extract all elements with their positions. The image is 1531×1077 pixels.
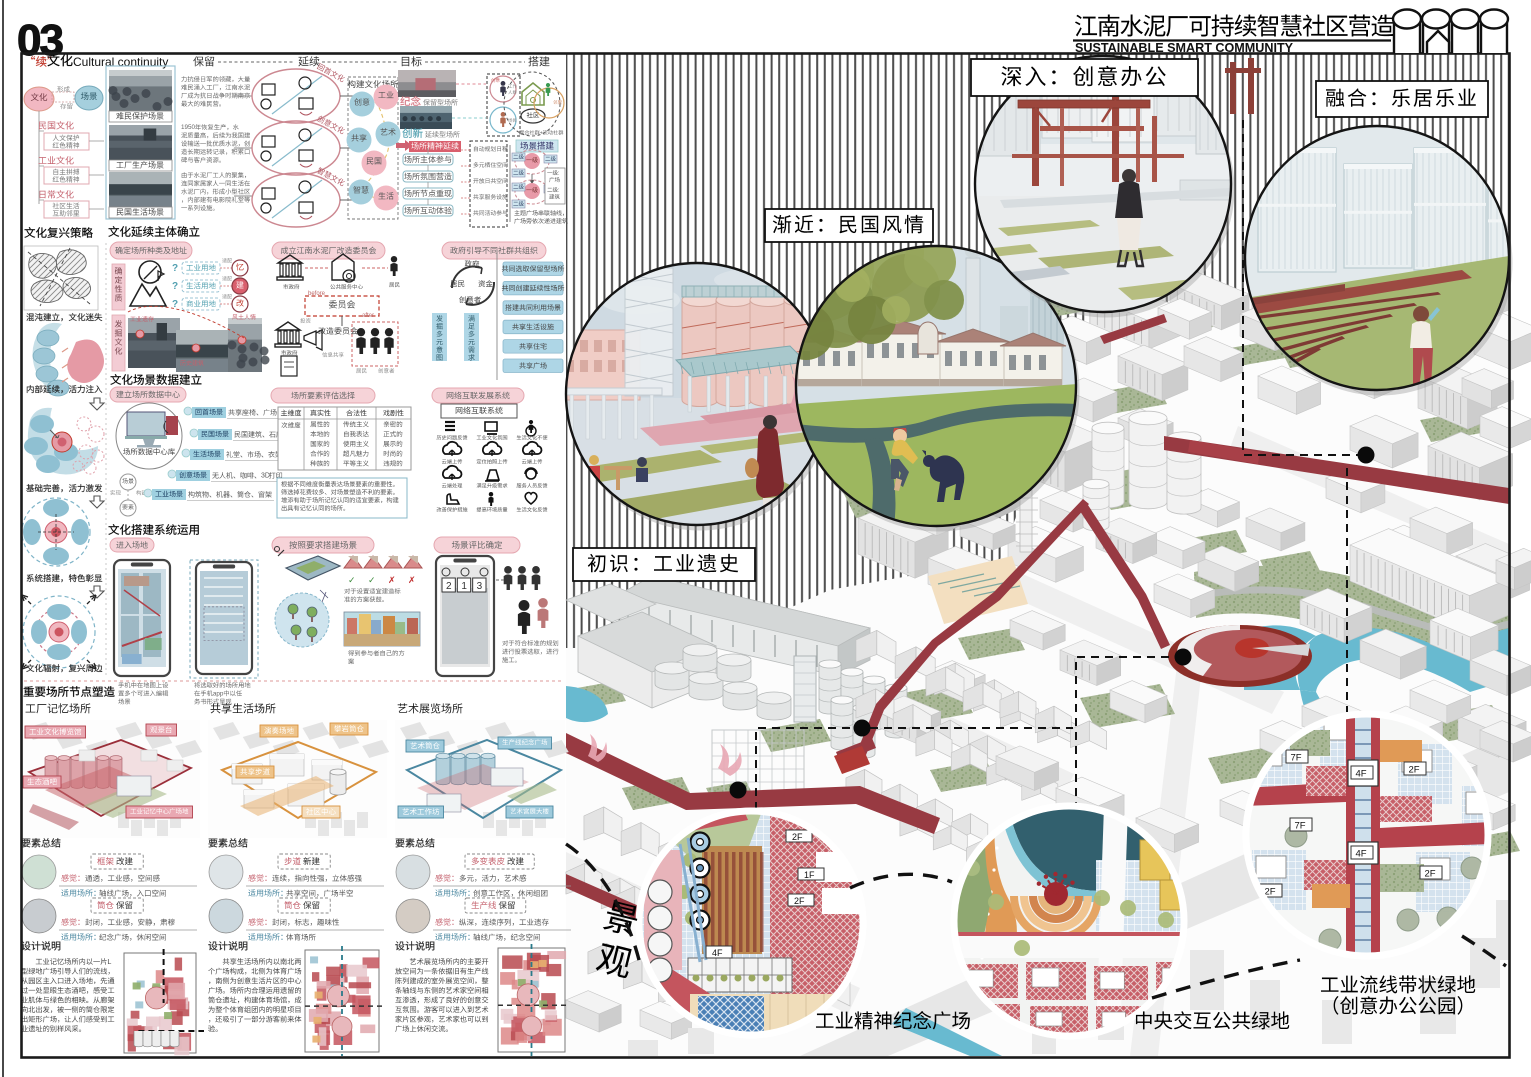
svg-text:app: app [213, 690, 224, 697]
svg-text:4F: 4F [1356, 849, 1367, 860]
svg-text:✓: ✓ [348, 575, 356, 585]
svg-text:7F: 7F [1291, 753, 1302, 764]
svg-text:2F: 2F [792, 832, 803, 842]
svg-text:2: 2 [446, 581, 452, 592]
svg-text:4F: 4F [712, 948, 723, 958]
svg-text:before: before [308, 291, 326, 297]
svg-text:2F: 2F [1425, 869, 1436, 880]
svg-text:SUSTAINABLE SMART COMMUNITY: SUSTAINABLE SMART COMMUNITY [1075, 41, 1294, 55]
svg-text:7F: 7F [1295, 821, 1306, 832]
svg-text:03: 03 [17, 16, 62, 65]
svg-text:2F: 2F [1409, 765, 1420, 776]
svg-text:2F: 2F [794, 896, 805, 906]
svg-text:Cultural continuity: Cultural continuity [73, 55, 168, 69]
svg-text:✗: ✗ [388, 575, 396, 585]
svg-text:L: L [107, 957, 111, 966]
svg-text:+: + [540, 130, 543, 136]
svg-text:1: 1 [461, 581, 467, 592]
svg-text:?: ? [172, 281, 178, 292]
svg-text:1950: 1950 [181, 124, 196, 131]
svg-text:4F: 4F [1356, 769, 1367, 780]
svg-text:3: 3 [477, 581, 483, 592]
svg-text:1F: 1F [804, 870, 815, 880]
svg-text:3D: 3D [261, 473, 270, 480]
svg-text:✓: ✓ [368, 575, 376, 585]
svg-text:✗: ✗ [408, 575, 416, 585]
svg-text:after: after [362, 313, 374, 319]
svg-text:?: ? [172, 263, 178, 274]
